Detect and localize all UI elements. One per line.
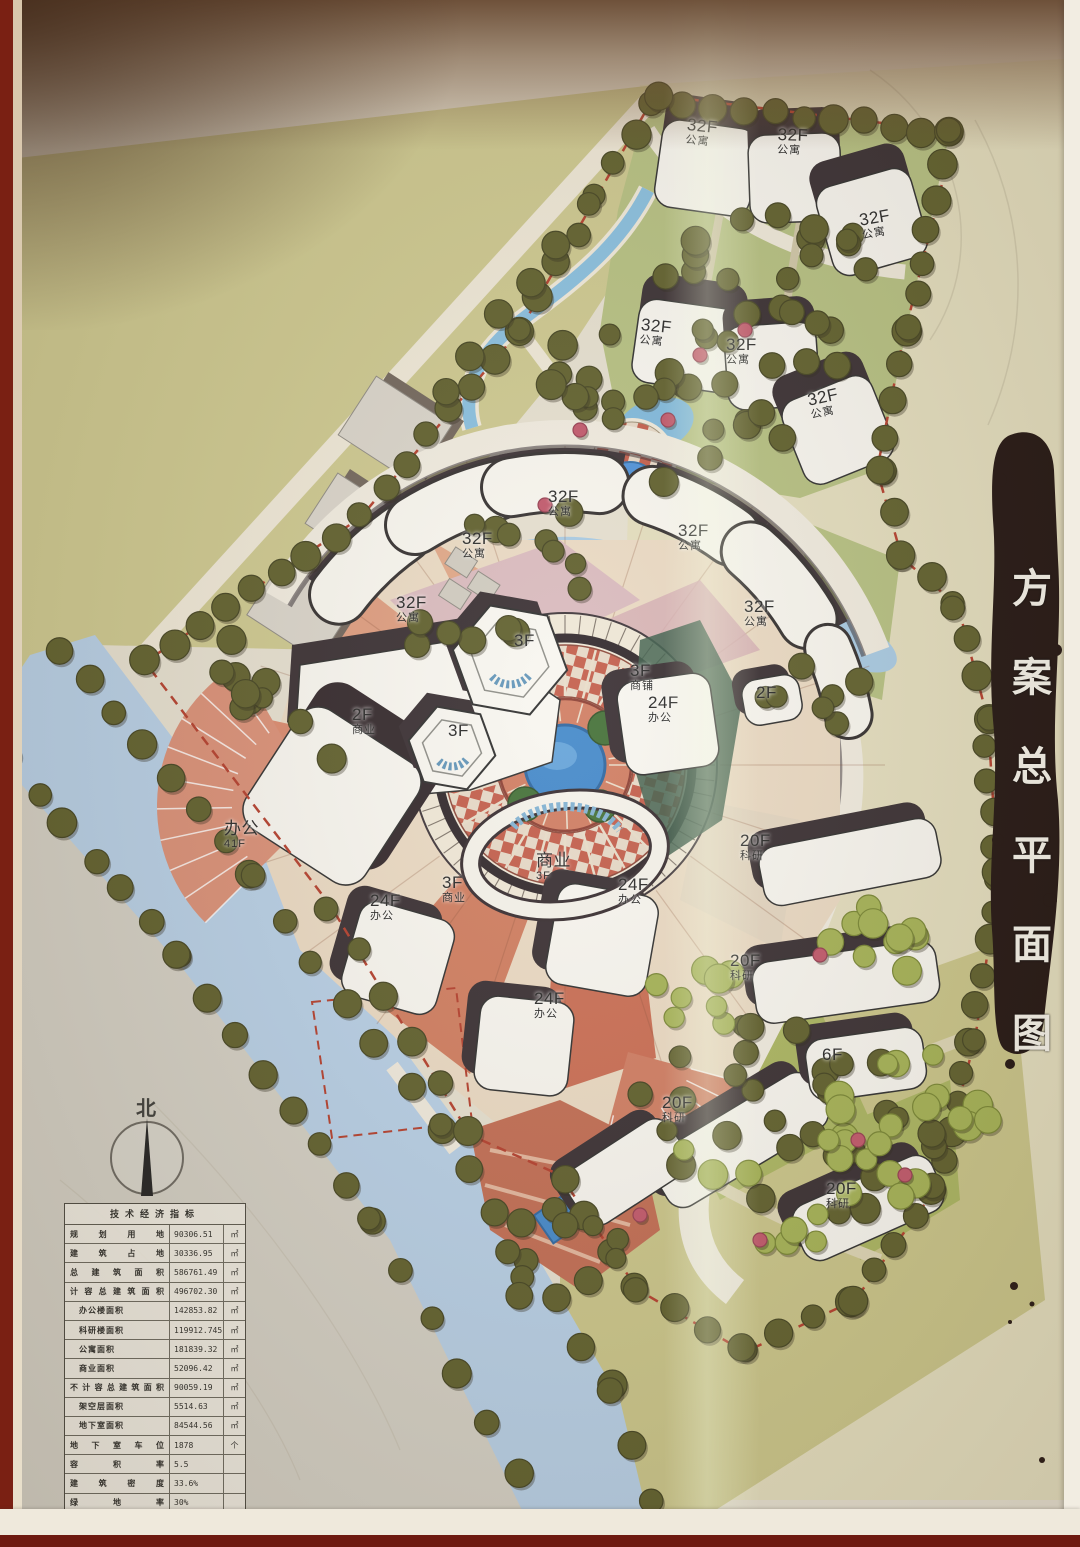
table-row: 地下室车位1878个 bbox=[65, 1436, 245, 1455]
table-row: 总建筑面积586761.49㎡ bbox=[65, 1263, 245, 1282]
table-row: 办公楼面积142853.82㎡ bbox=[65, 1302, 245, 1321]
table-row: 计容总建筑面积496702.30㎡ bbox=[65, 1283, 245, 1302]
table-row: 建筑占地30336.95㎡ bbox=[65, 1244, 245, 1263]
table-row: 地下室面积84544.56㎡ bbox=[65, 1417, 245, 1436]
tec-indicators-table: 技术经济指标 规划用地90306.51㎡建筑占地30336.95㎡总建筑面积58… bbox=[64, 1203, 246, 1513]
tec-table-rows: 规划用地90306.51㎡建筑占地30336.95㎡总建筑面积586761.49… bbox=[65, 1225, 245, 1512]
table-row: 科研楼面积119912.745㎡ bbox=[65, 1321, 245, 1340]
table-row: 绿地率30% bbox=[65, 1494, 245, 1512]
table-row: 容积率5.5 bbox=[65, 1455, 245, 1474]
table-row: 建筑密度33.6% bbox=[65, 1474, 245, 1493]
table-row: 公寓面积181839.32㎡ bbox=[65, 1340, 245, 1359]
north-label: 北 bbox=[136, 1092, 156, 1121]
table-row: 架空层面积5514.63㎡ bbox=[65, 1398, 245, 1417]
table-row: 不计容总建筑面积90059.19㎡ bbox=[65, 1379, 245, 1398]
tec-table-title: 技术经济指标 bbox=[65, 1204, 245, 1225]
masterplan-photo: 32F公寓32F公寓32F公寓32F公寓32F公寓32F公寓32F公寓32F公寓… bbox=[0, 0, 1080, 1547]
table-row: 商业面积52096.42㎡ bbox=[65, 1359, 245, 1378]
table-row: 规划用地90306.51㎡ bbox=[65, 1225, 245, 1244]
